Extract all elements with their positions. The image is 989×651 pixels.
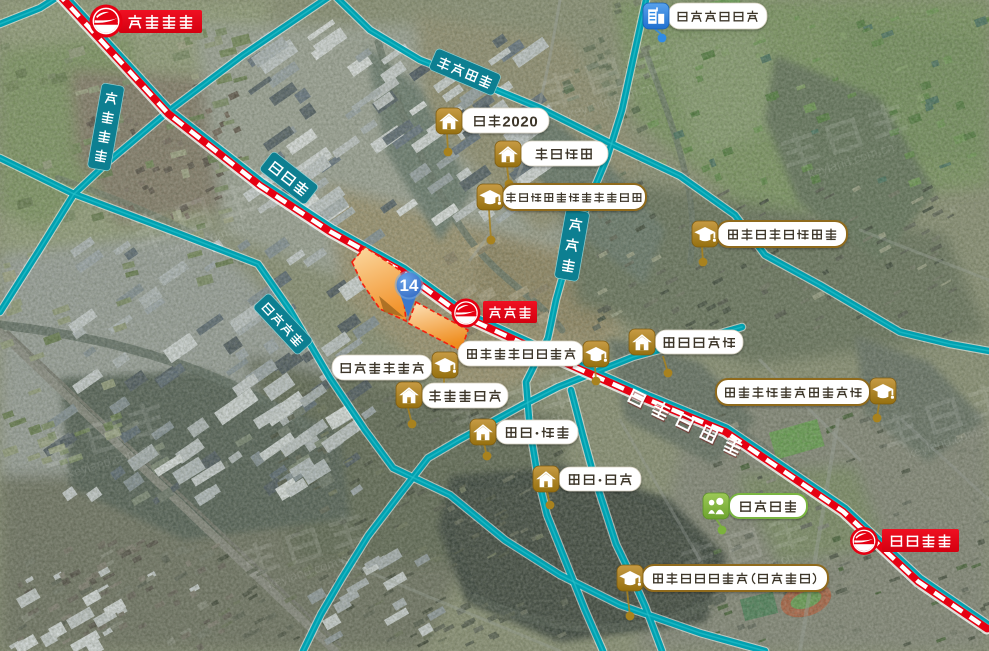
svg-text:14: 14 <box>400 276 419 295</box>
svg-text:2: 2 <box>520 113 528 130</box>
svg-text:0: 0 <box>511 113 519 130</box>
svg-text:2: 2 <box>502 113 510 130</box>
svg-text:0: 0 <box>529 113 537 130</box>
